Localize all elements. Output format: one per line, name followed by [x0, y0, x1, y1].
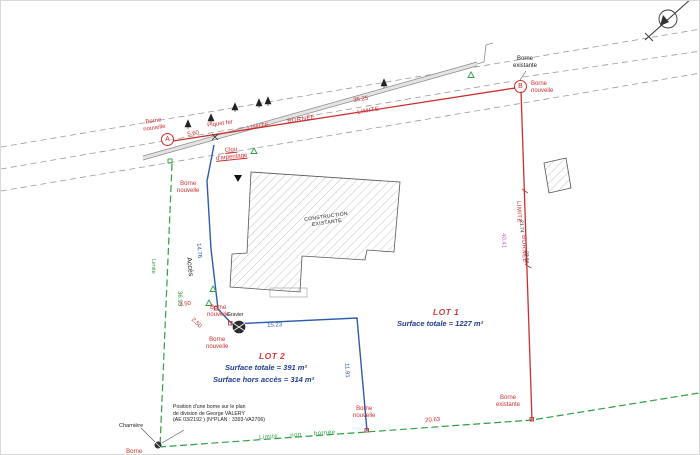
point-a-marker: A	[161, 133, 174, 146]
borne-nouvelle-label-a: Borne nouvelle	[142, 117, 166, 134]
point-b-marker: B	[514, 80, 527, 93]
borne-nouvelle-label-b: Borne nouvelle	[531, 81, 553, 95]
charniere-symbol	[155, 442, 162, 449]
borne-nouvelle-label-access-top: Borne nouvelle	[177, 181, 199, 195]
dim-40-41: 40.41	[499, 233, 507, 248]
lot2-surface-hors-acces: Surface hors accès = 314 m²	[213, 375, 314, 384]
borne-position-note: Position d'une borne sur le plan de divi…	[173, 404, 265, 424]
lot2-title: LOT 2	[259, 351, 285, 361]
neighbor-building	[544, 158, 571, 193]
gravier-label: Gravier	[227, 312, 243, 318]
lot1-surface-totale: Surface totale = 1227 m²	[397, 319, 483, 328]
dim-20-63: 20.63	[425, 417, 440, 425]
charniere-label: Charnière	[119, 423, 143, 430]
borne-nouvelle-label-bottom-left: Borne nouvelle	[123, 449, 145, 455]
dim-23-56: 23.56	[523, 251, 529, 264]
lot2-surface-totale: Surface totale = 391 m²	[225, 363, 307, 372]
dim-11-91: 11.91	[342, 363, 350, 378]
limite-label-left: Limite	[149, 259, 156, 274]
dim-3-50: 3.50	[179, 301, 191, 309]
building-footprint	[230, 172, 400, 297]
dim-21-74: 21.74	[518, 220, 524, 233]
plan-linework	[1, 1, 700, 455]
building-entrance-marker	[234, 175, 242, 182]
roadside-wall	[143, 43, 493, 160]
borne-nouvelle-label-bend1: Borne nouvelle	[207, 305, 229, 319]
north-arrow-icon	[645, 1, 692, 41]
borne-nouvelle-label-blue-end: Borne nouvelle	[353, 406, 375, 420]
dim-14-76: 14.76	[194, 243, 202, 258]
lot1-title: LOT 1	[433, 307, 459, 317]
division-plan: Borne nouvelle A Piquet fer 5.60 LIMITE …	[0, 0, 700, 455]
road-lines	[1, 29, 700, 191]
borne-existante-label-bottom: Borne existante	[496, 395, 520, 409]
borne-existante-label-top: Borne existante	[513, 56, 537, 70]
gravier-symbol	[233, 321, 245, 333]
dim-15-23: 15.23	[267, 322, 282, 330]
borne-nouvelle-label-bend2: Borne nouvelle	[206, 337, 228, 351]
